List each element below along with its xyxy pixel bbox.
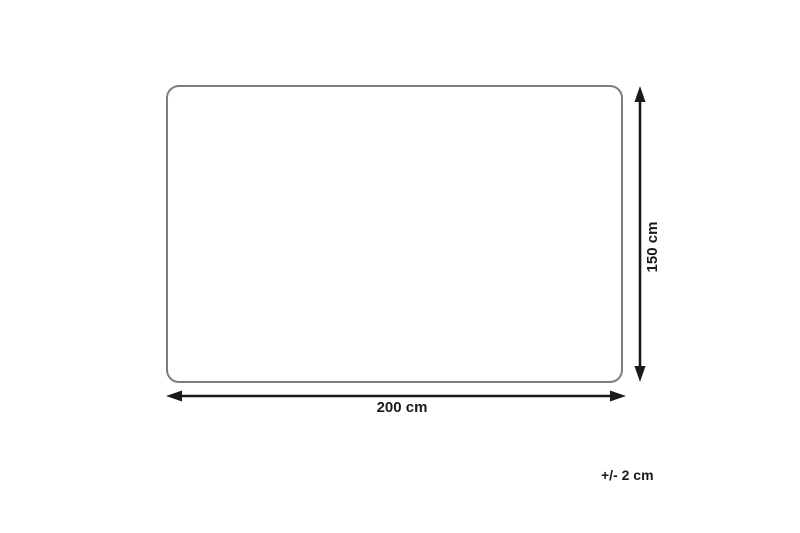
height-dimension-label: 150 cm xyxy=(644,222,661,273)
arrow-down-head-icon xyxy=(635,366,646,382)
arrow-right-head-icon xyxy=(610,391,626,402)
width-dimension-label: 200 cm xyxy=(377,399,428,416)
dimension-diagram: 200 cm 150 cm +/- 2 cm xyxy=(0,0,800,533)
tolerance-label: +/- 2 cm xyxy=(601,467,654,483)
arrow-left-head-icon xyxy=(166,391,182,402)
dimension-diagram-canvas: 200 cm 150 cm +/- 2 cm xyxy=(0,0,800,533)
product-outline xyxy=(167,86,622,382)
arrow-up-head-icon xyxy=(635,86,646,102)
